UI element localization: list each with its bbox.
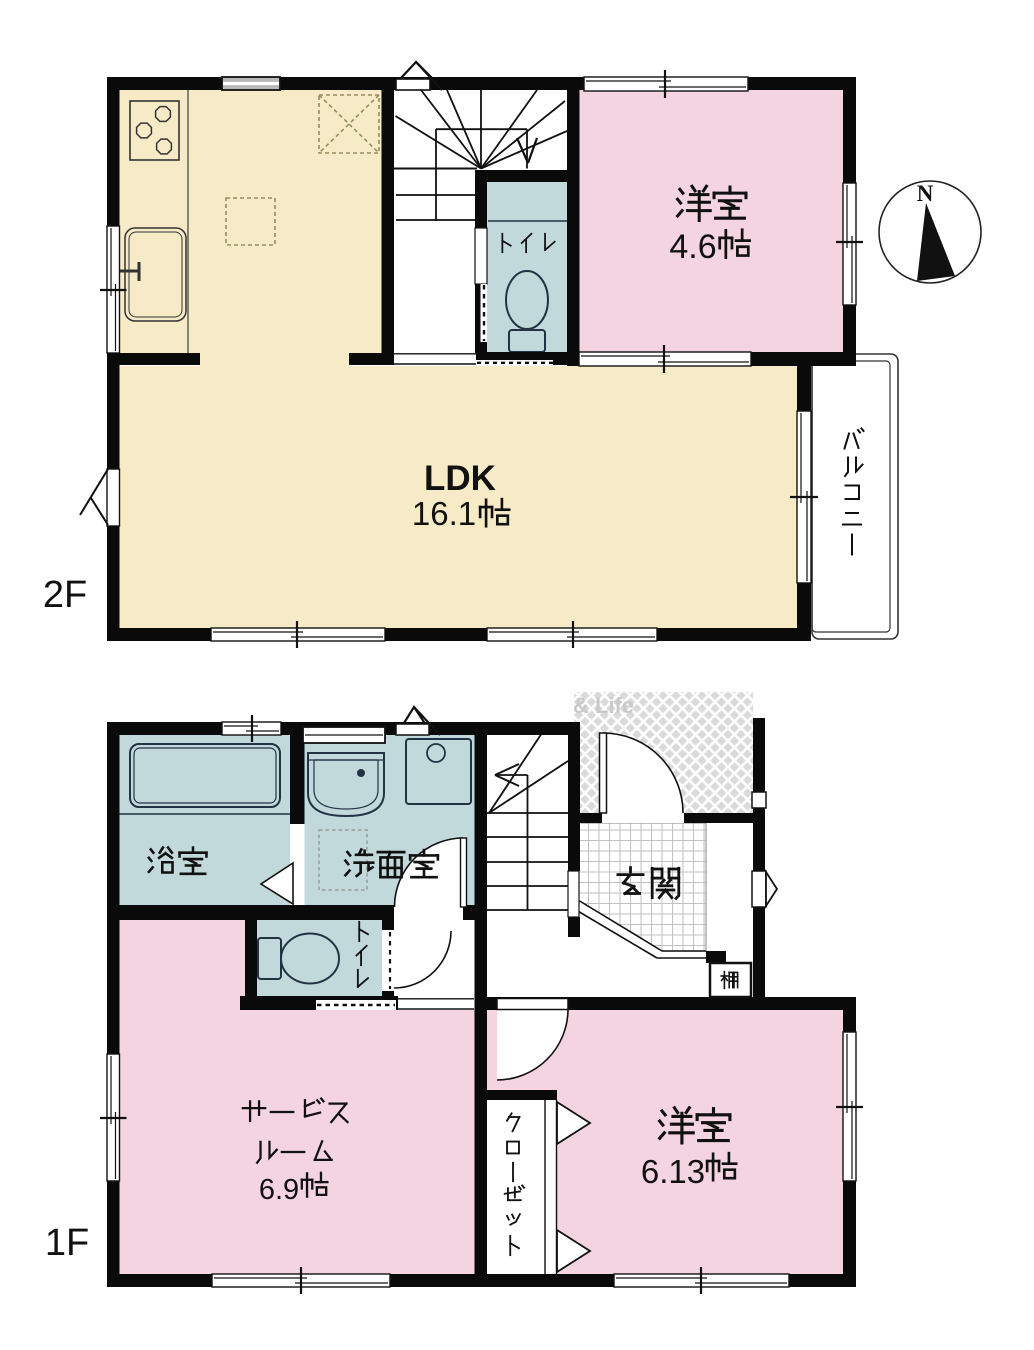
svg-text:6.9: 6.9 [259,1174,299,1206]
svg-text:16.1: 16.1 [412,495,476,532]
svg-text:1F: 1F [45,1222,89,1264]
svg-text:& Life: & Life [573,693,634,718]
svg-text:LDK: LDK [424,459,496,498]
svg-text:4.6: 4.6 [669,228,716,266]
svg-text:N: N [917,181,934,206]
svg-text:2F: 2F [43,574,87,616]
svg-text:6.13: 6.13 [641,1153,705,1190]
